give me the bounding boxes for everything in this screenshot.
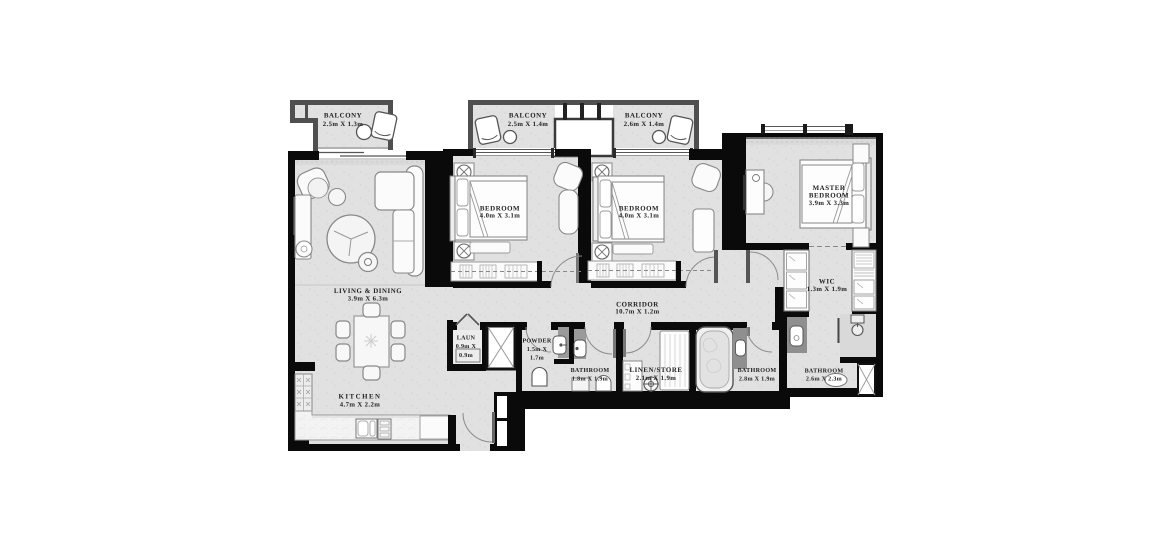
svg-text:2.6m X 2.3m: 2.6m X 2.3m bbox=[806, 376, 842, 383]
svg-text:POWDER: POWDER bbox=[522, 338, 552, 345]
svg-text:1.8m X 1.9m: 1.8m X 1.9m bbox=[572, 376, 608, 383]
svg-text:2.6m X 1.4m: 2.6m X 1.4m bbox=[624, 121, 664, 128]
svg-text:2.5m X 1.3m: 2.5m X 1.3m bbox=[323, 121, 363, 128]
svg-text:2.5m X 1.4m: 2.5m X 1.4m bbox=[508, 121, 548, 128]
svg-text:4.0m X 3.1m: 4.0m X 3.1m bbox=[480, 213, 520, 220]
svg-text:0.9m: 0.9m bbox=[459, 352, 473, 359]
svg-text:BATHROOM: BATHROOM bbox=[571, 367, 610, 374]
svg-text:3.9m X 6.3m: 3.9m X 6.3m bbox=[348, 296, 388, 303]
svg-text:BATHROOM: BATHROOM bbox=[738, 367, 777, 374]
svg-text:3.9m X 3.3m: 3.9m X 3.3m bbox=[809, 200, 849, 207]
svg-text:BEDROOM: BEDROOM bbox=[619, 206, 659, 213]
svg-text:LINEN/STORE: LINEN/STORE bbox=[629, 367, 682, 374]
svg-text:MASTER: MASTER bbox=[813, 185, 846, 192]
svg-text:BALCONY: BALCONY bbox=[509, 113, 547, 120]
svg-text:2.1m X 1.9m: 2.1m X 1.9m bbox=[636, 375, 676, 382]
svg-text:0.9m X: 0.9m X bbox=[456, 343, 477, 350]
svg-text:BEDROOM: BEDROOM bbox=[480, 206, 520, 213]
svg-text:WIC: WIC bbox=[819, 279, 835, 286]
svg-text:KITCHEN: KITCHEN bbox=[338, 394, 381, 401]
svg-text:LIVING & DINING: LIVING & DINING bbox=[334, 288, 402, 295]
svg-text:BEDROOM: BEDROOM bbox=[809, 193, 849, 200]
svg-text:4.0m X 3.1m: 4.0m X 3.1m bbox=[619, 213, 659, 220]
svg-text:10.7m X 1.2m: 10.7m X 1.2m bbox=[615, 309, 659, 316]
svg-text:BATHROOM: BATHROOM bbox=[805, 368, 844, 375]
svg-text:2.8m X 1.9m: 2.8m X 1.9m bbox=[739, 376, 775, 383]
svg-text:LAUN: LAUN bbox=[457, 335, 476, 342]
svg-text:CORRIDOR: CORRIDOR bbox=[616, 302, 659, 309]
svg-text:1.3m X 1.9m: 1.3m X 1.9m bbox=[807, 286, 847, 293]
svg-text:BALCONY: BALCONY bbox=[324, 113, 362, 120]
svg-text:1.5m X: 1.5m X bbox=[527, 346, 548, 353]
svg-text:1.7m: 1.7m bbox=[530, 355, 544, 362]
svg-text:4.7m X 2.2m: 4.7m X 2.2m bbox=[340, 402, 380, 409]
svg-text:BALCONY: BALCONY bbox=[625, 113, 663, 120]
